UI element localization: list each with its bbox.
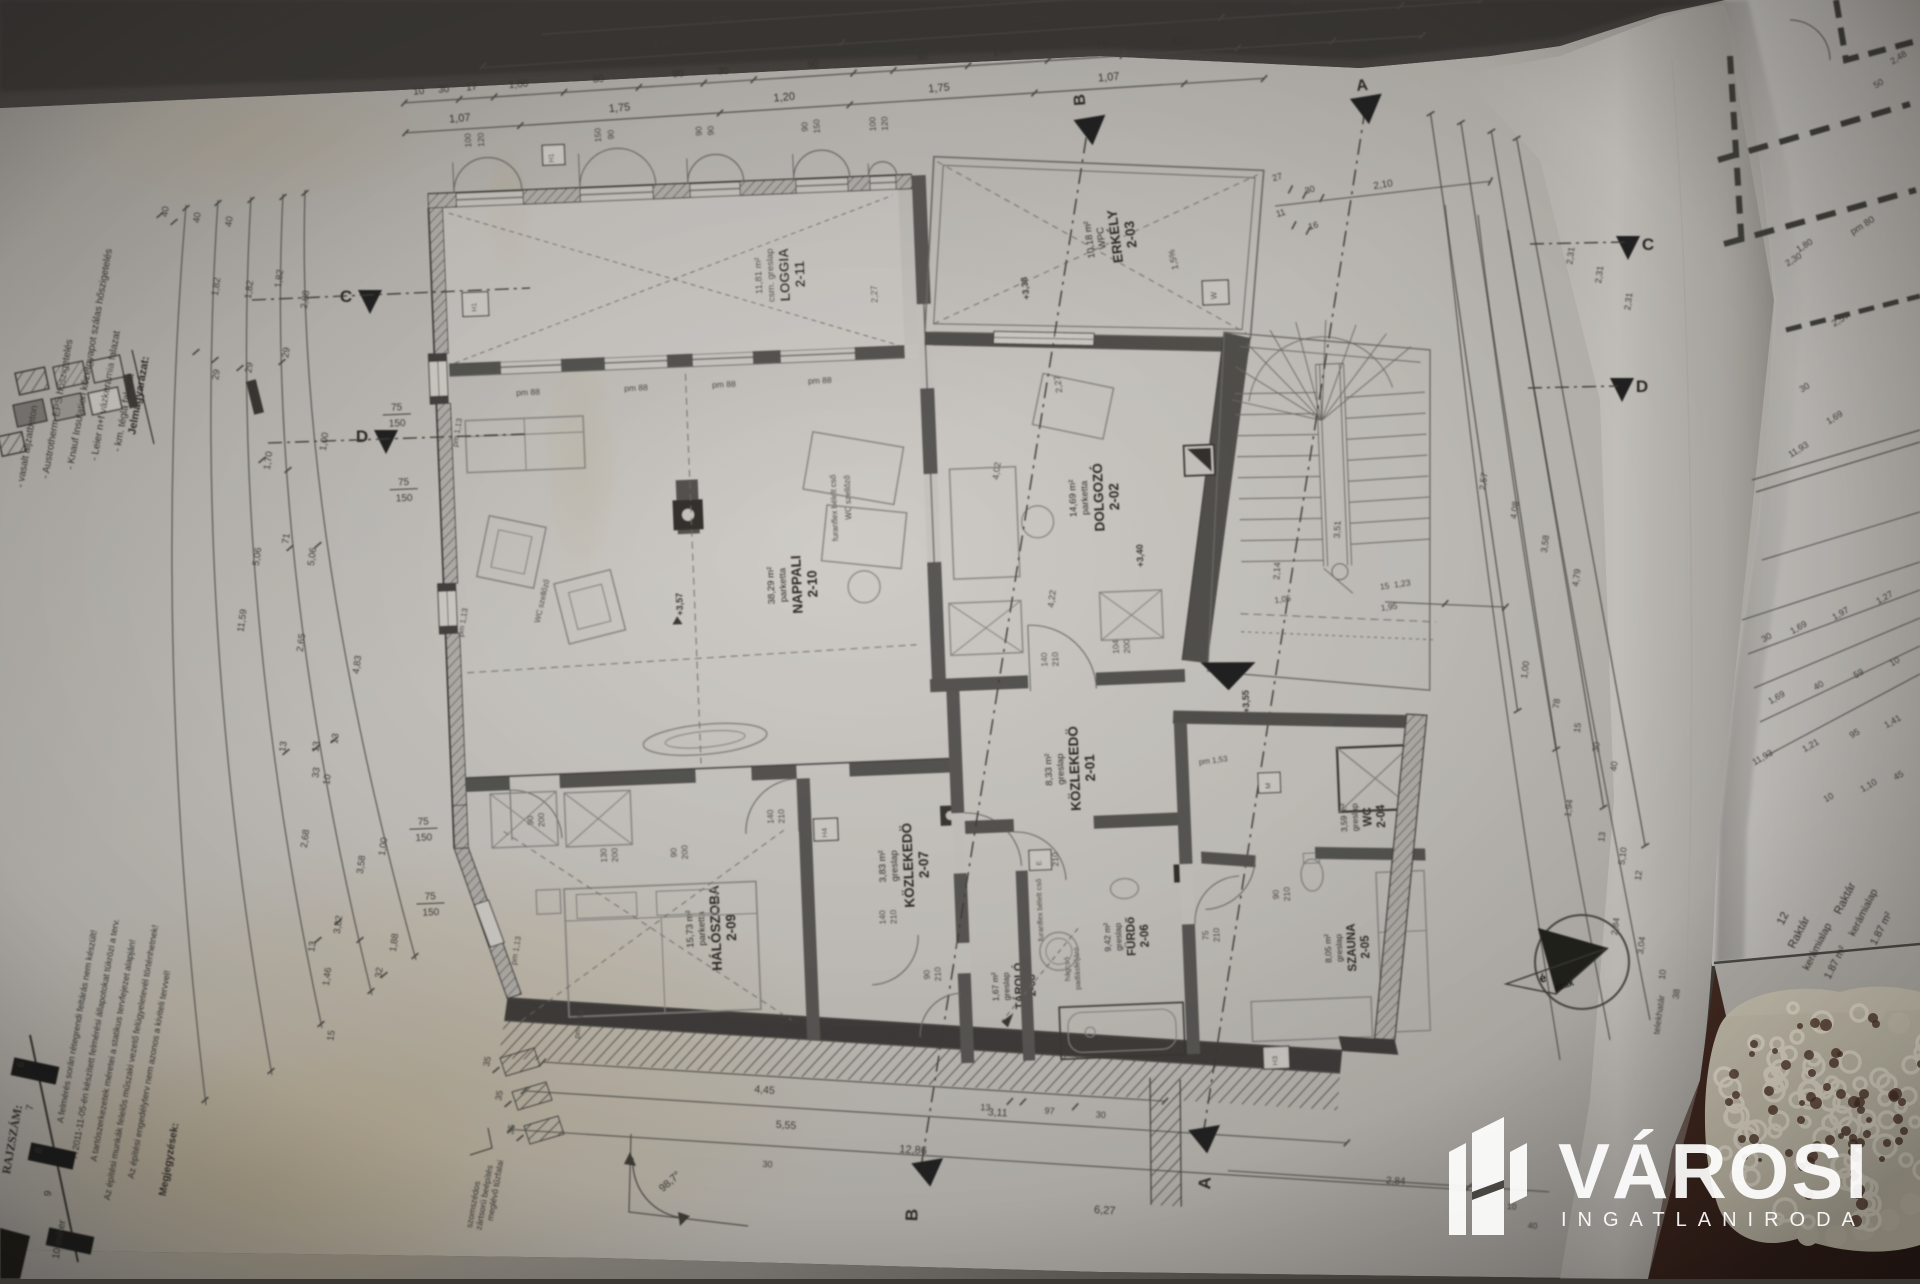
svg-text:INGATLANIRODA: INGATLANIRODA [1561,1209,1866,1231]
svg-text:VÁROSI: VÁROSI [1558,1127,1869,1215]
